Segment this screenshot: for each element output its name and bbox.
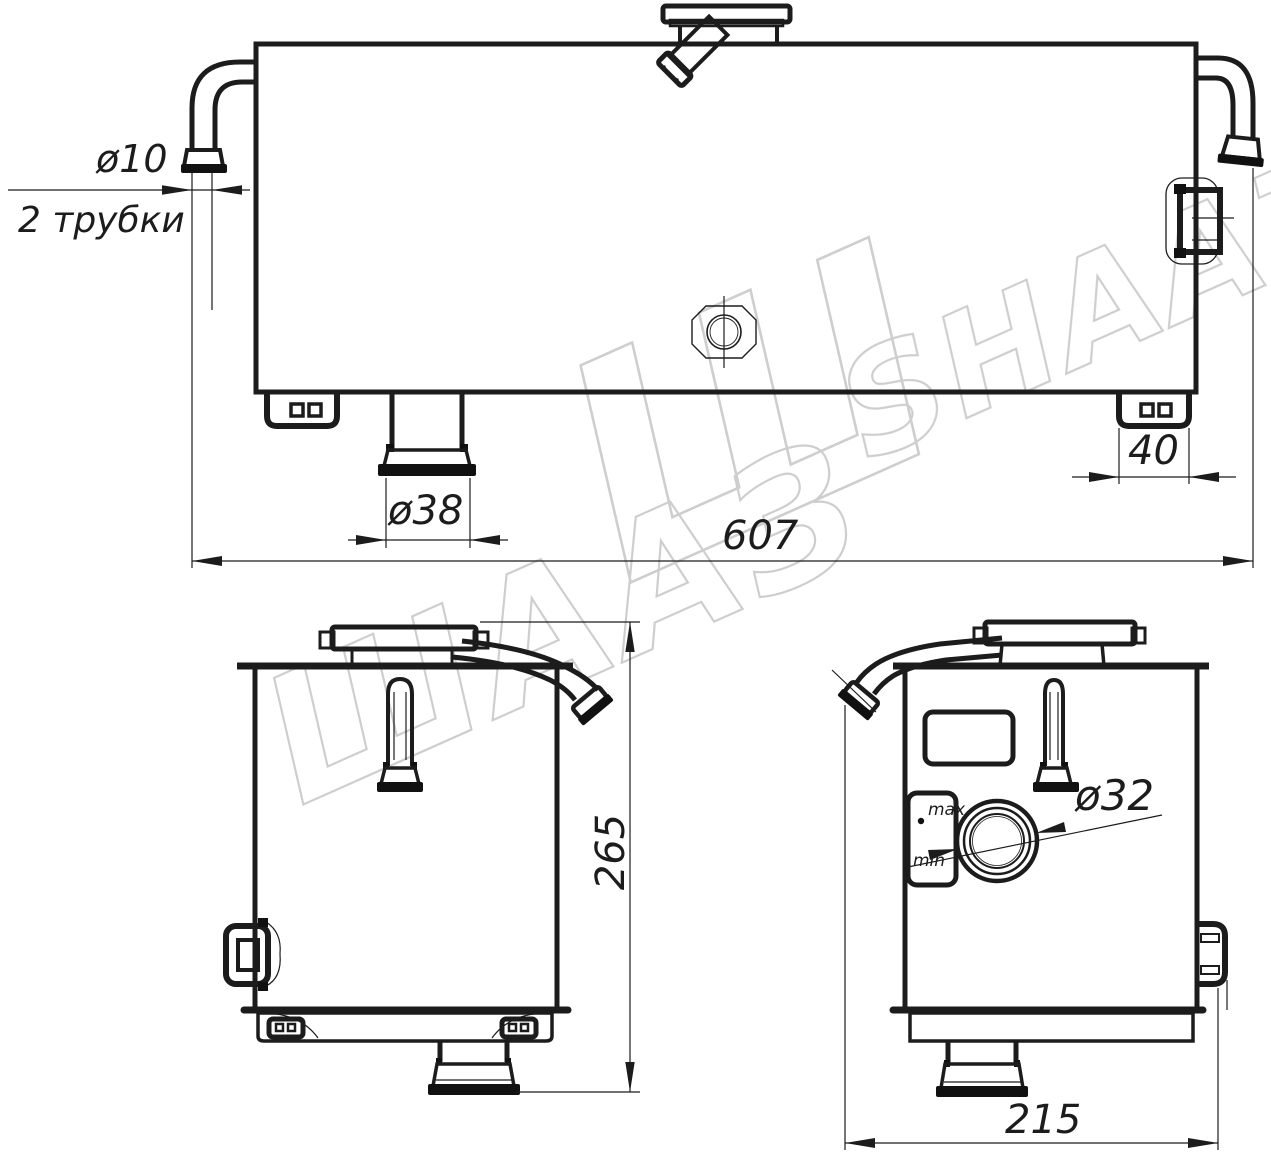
base-foot-left bbox=[269, 1019, 303, 1037]
side-view-right: max min bbox=[832, 622, 1227, 1097]
label-max: max bbox=[928, 800, 966, 820]
dim-drain-dia: ø38 bbox=[387, 488, 463, 534]
mount-window bbox=[925, 712, 1013, 764]
dim-length: 607 bbox=[722, 513, 799, 559]
dim-foot: 40 bbox=[1128, 428, 1179, 474]
max-level-dot bbox=[918, 818, 924, 824]
dimension-depth: 215 bbox=[845, 705, 1218, 1150]
drain-pipe-right-view bbox=[936, 1041, 1028, 1097]
dim-height: 265 bbox=[588, 814, 634, 890]
vent-tube-right-view bbox=[1033, 680, 1079, 792]
drain-pipe-left-view bbox=[428, 1041, 520, 1095]
technical-drawing: ШААЗ Ш SHAAZ bbox=[0, 0, 1271, 1163]
dim-depth: 215 bbox=[1005, 1097, 1081, 1143]
filler-neck-circle bbox=[957, 801, 1037, 881]
drawing-canvas: ШААЗ Ш SHAAZ bbox=[0, 0, 1271, 1163]
foot-right bbox=[1119, 392, 1189, 426]
drain-pipe-front bbox=[378, 392, 476, 476]
dim-filler-dia: ø32 bbox=[1074, 771, 1154, 820]
cap-tube-right-view bbox=[832, 638, 1002, 721]
left-tube bbox=[181, 62, 256, 173]
foot-left bbox=[267, 392, 337, 426]
dim-tube-note: 2 трубки bbox=[18, 200, 185, 241]
cap-breather-tube bbox=[657, 14, 730, 87]
side-fitting-right-view bbox=[1199, 924, 1227, 1010]
base-foot-right bbox=[502, 1019, 536, 1037]
dim-tube-dia: ø10 bbox=[95, 137, 168, 181]
